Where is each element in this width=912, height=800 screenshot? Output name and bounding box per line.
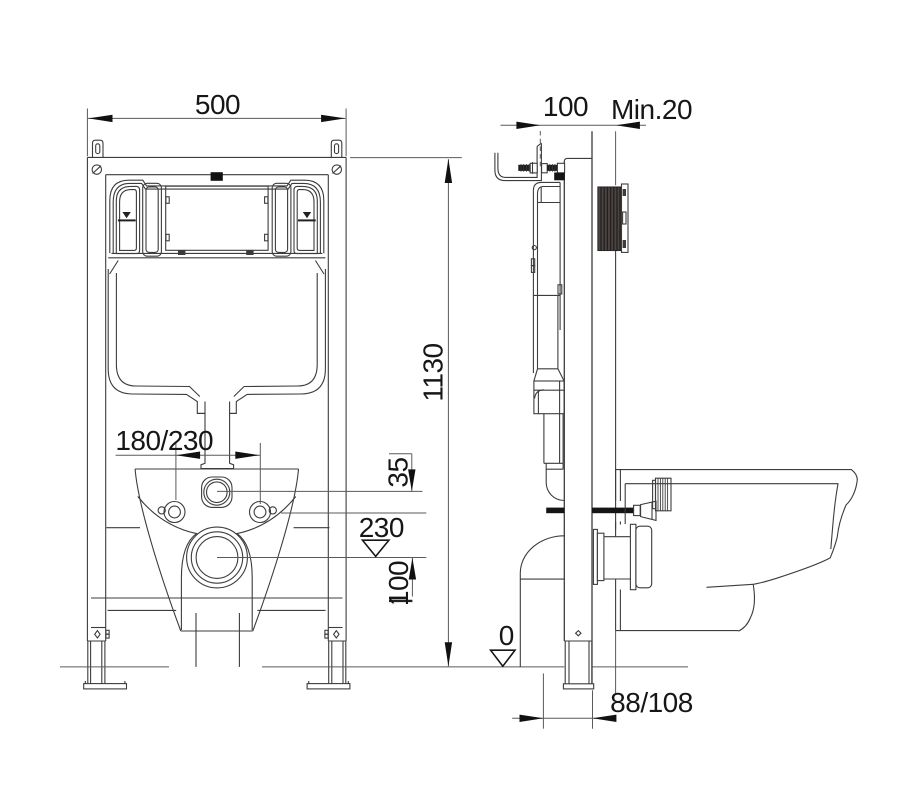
svg-text:35: 35 bbox=[382, 457, 413, 487]
svg-text:230: 230 bbox=[359, 512, 404, 543]
svg-text:88/108: 88/108 bbox=[610, 687, 693, 718]
svg-text:1130: 1130 bbox=[417, 343, 448, 401]
svg-text:100: 100 bbox=[383, 561, 414, 606]
svg-text:180/230: 180/230 bbox=[115, 425, 213, 456]
svg-text:0: 0 bbox=[499, 620, 514, 651]
svg-text:Min.20: Min.20 bbox=[611, 94, 692, 125]
svg-text:500: 500 bbox=[195, 89, 240, 120]
svg-text:100: 100 bbox=[543, 91, 588, 122]
